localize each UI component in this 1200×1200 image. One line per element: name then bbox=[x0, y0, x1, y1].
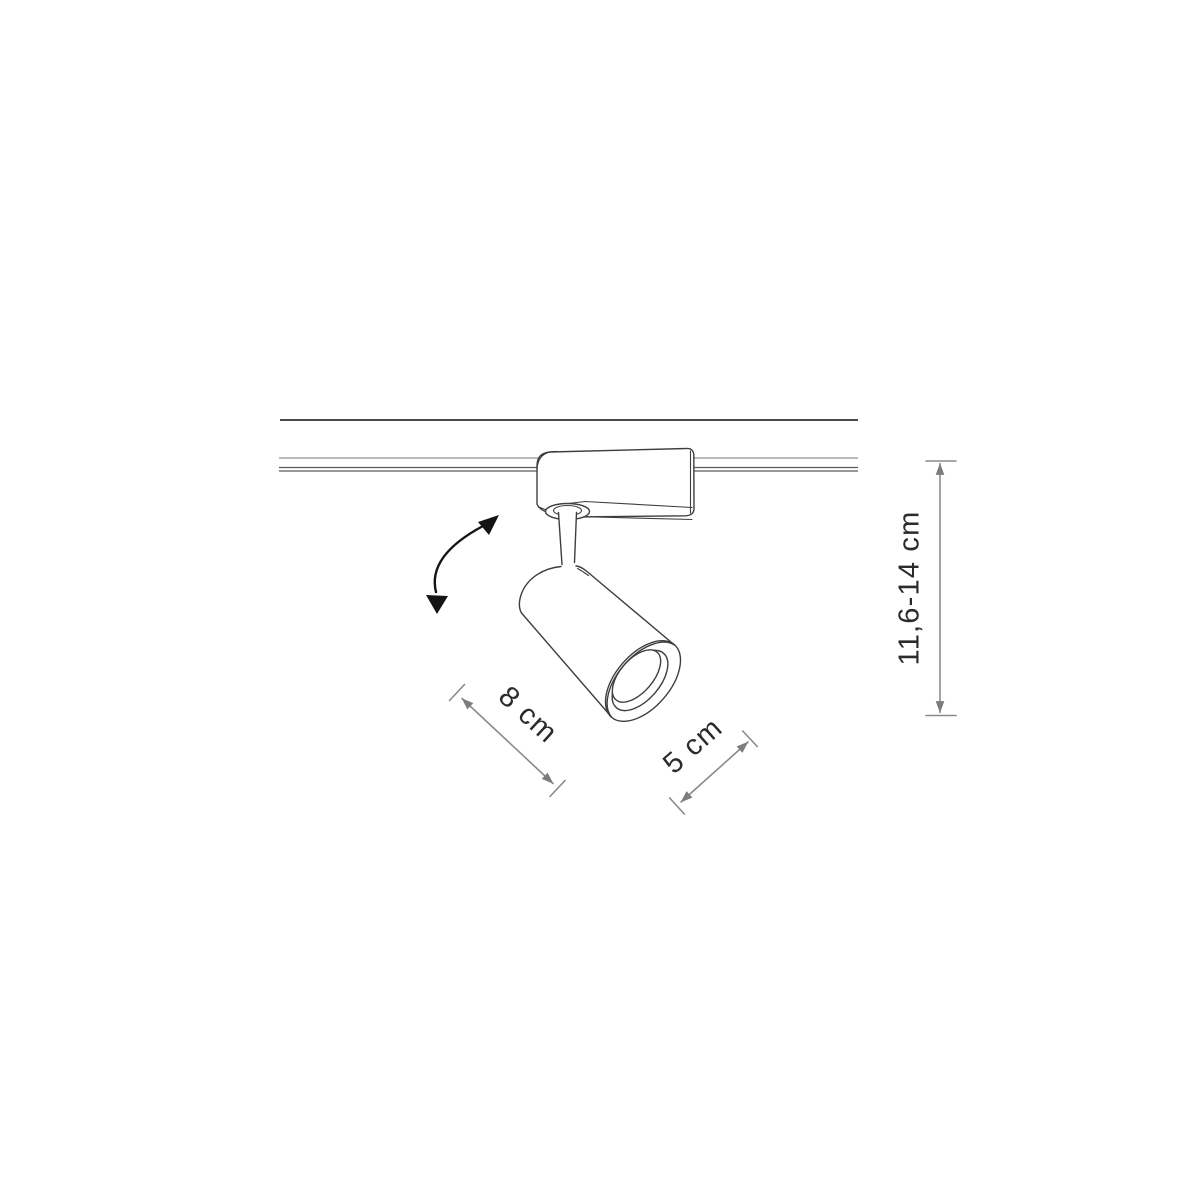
track-rail-left bbox=[279, 458, 538, 471]
swivel-stem bbox=[558, 512, 577, 565]
dimension-diameter: 5 cm bbox=[657, 712, 757, 814]
track-rail-right bbox=[693, 458, 858, 471]
dimension-height: 11,6-14 cm bbox=[894, 461, 956, 716]
dimension-length-label: 8 cm bbox=[492, 680, 564, 749]
dimension-length: 8 cm bbox=[450, 680, 566, 796]
diagram-canvas: 8 cm 5 cm 11,6-14 cm bbox=[0, 0, 1200, 1200]
diagram-stage: 8 cm 5 cm 11,6-14 cm bbox=[0, 0, 1200, 1200]
dimension-height-label: 11,6-14 cm bbox=[894, 511, 926, 666]
dimension-diameter-label: 5 cm bbox=[657, 712, 729, 781]
rotation-arrow-icon bbox=[426, 515, 499, 614]
